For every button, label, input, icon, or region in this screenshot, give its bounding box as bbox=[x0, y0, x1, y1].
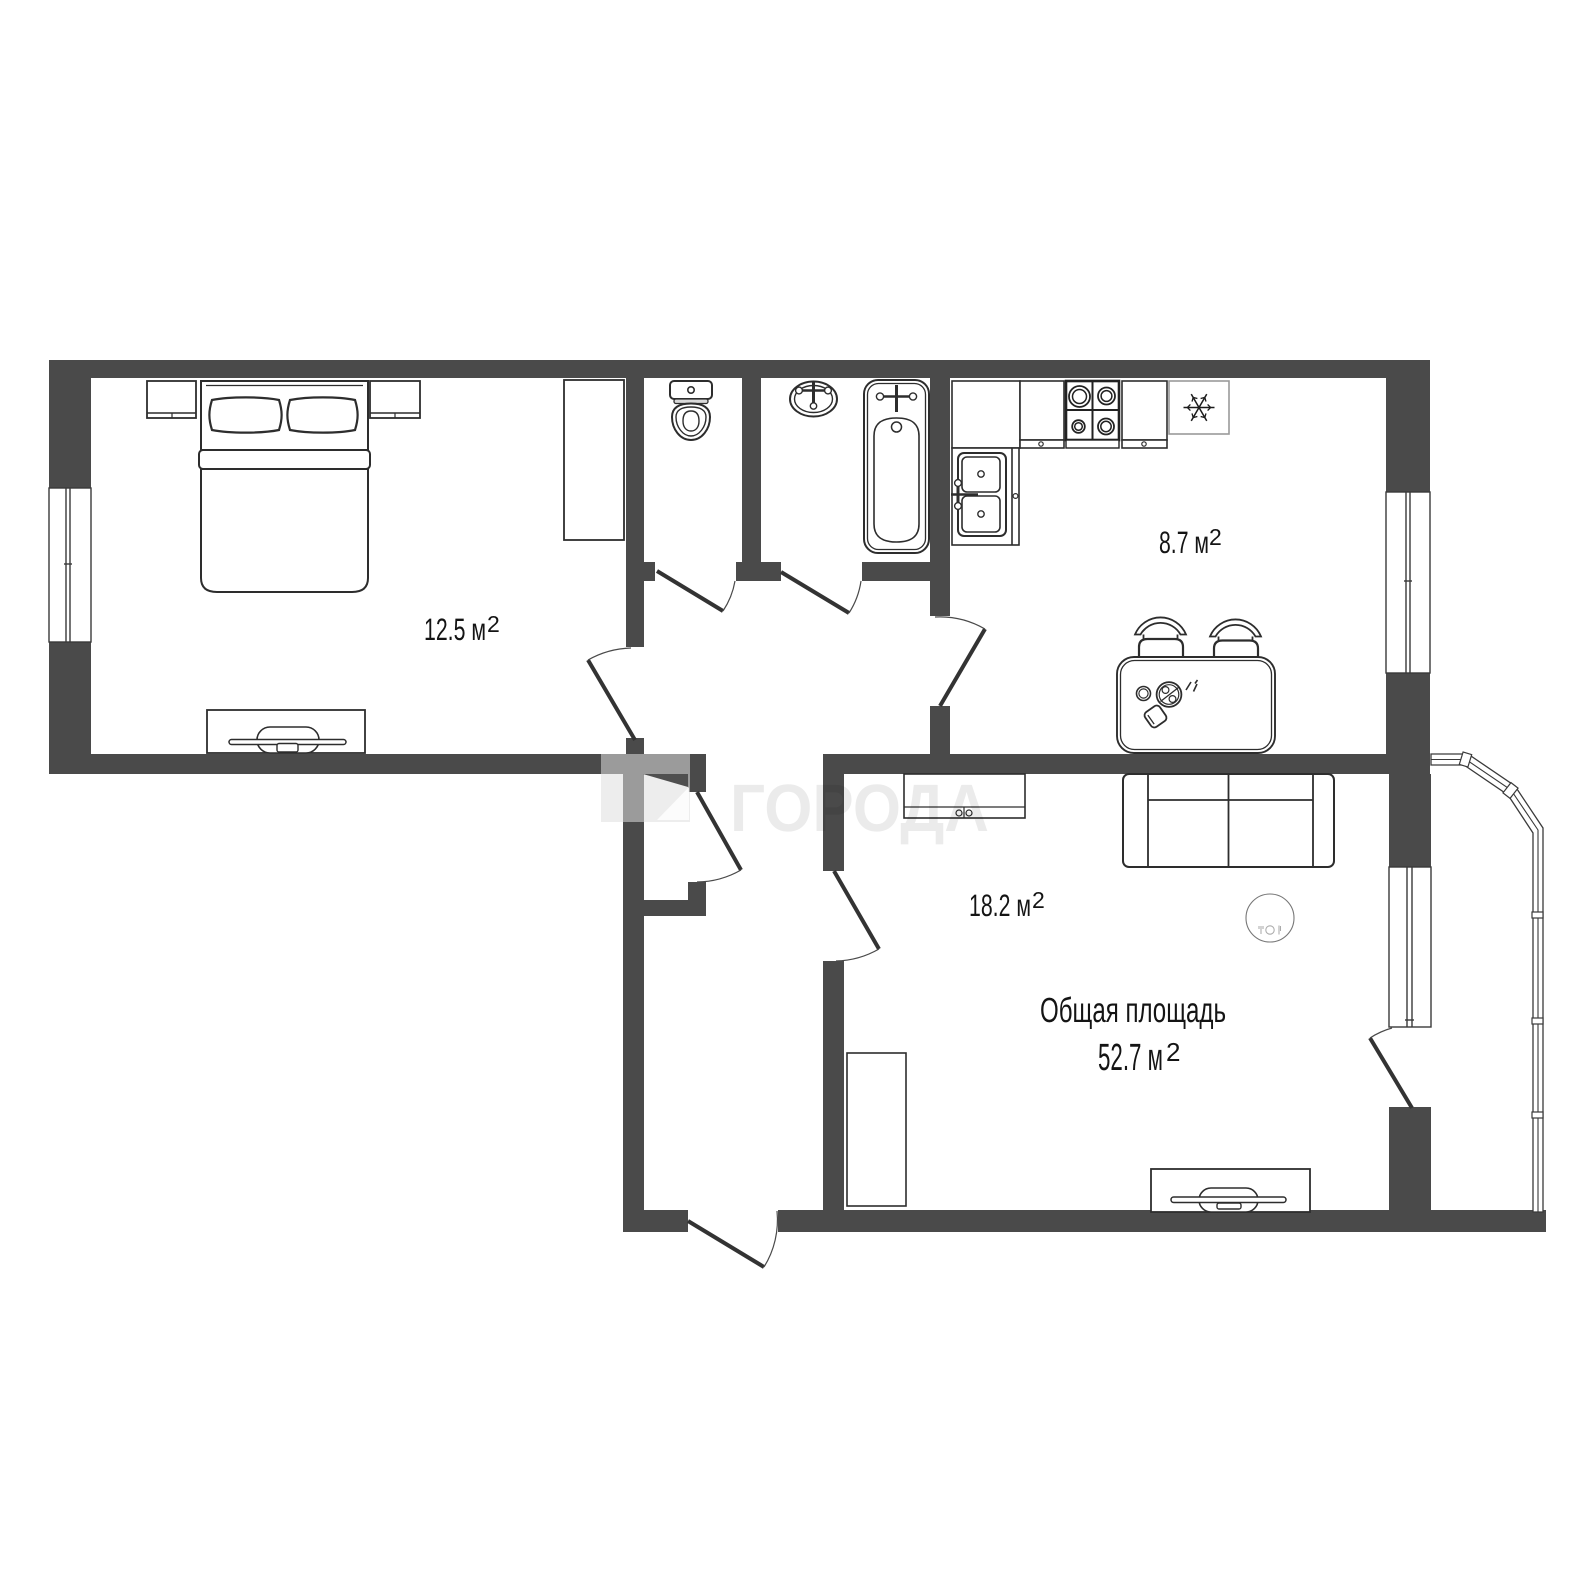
svg-text:ГОРОДА: ГОРОДА bbox=[730, 771, 989, 846]
svg-text:2: 2 bbox=[1166, 1037, 1180, 1067]
svg-text:Общая площадь: Общая площадь bbox=[1040, 991, 1226, 1030]
svg-text:52.7 м: 52.7 м bbox=[1098, 1037, 1163, 1079]
svg-text:12.5 м: 12.5 м bbox=[424, 612, 486, 647]
svg-text:2: 2 bbox=[487, 611, 500, 637]
svg-text:2: 2 bbox=[1032, 887, 1045, 913]
svg-text:18.2 м: 18.2 м bbox=[969, 888, 1031, 923]
svg-text:2: 2 bbox=[1209, 524, 1222, 550]
svg-text:8.7 м: 8.7 м bbox=[1159, 525, 1209, 560]
